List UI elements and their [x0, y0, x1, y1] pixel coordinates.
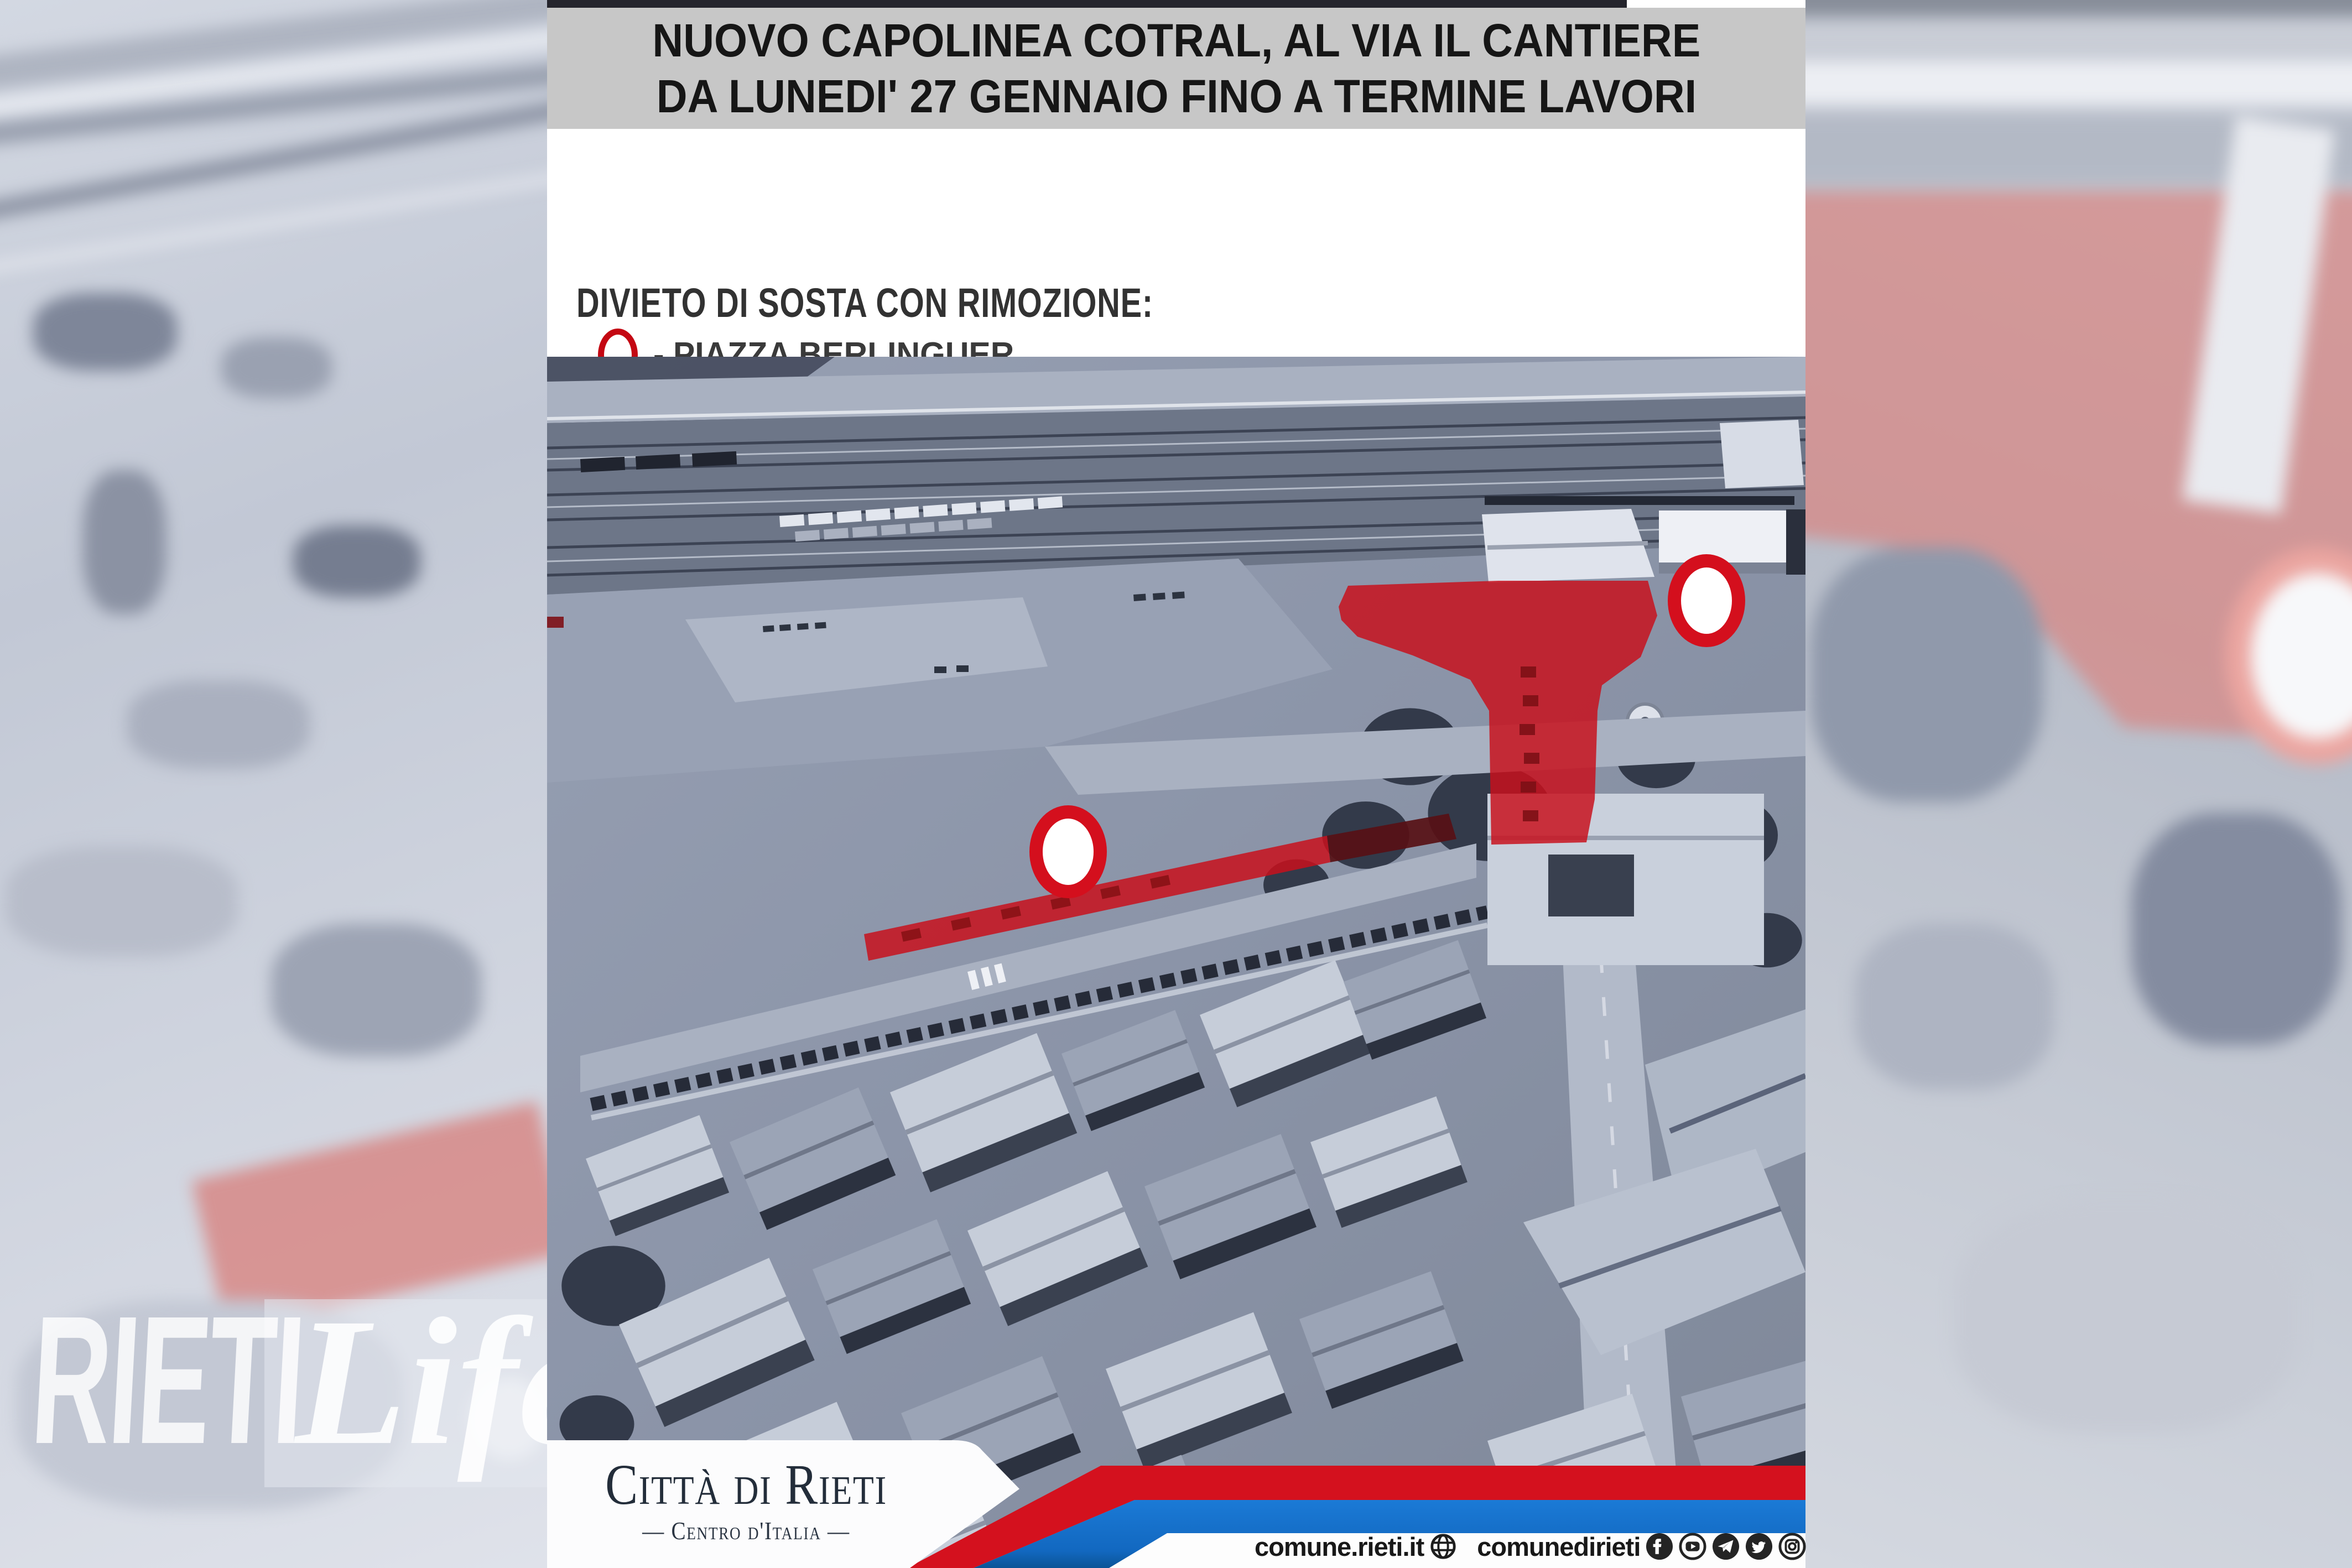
city-logo-subtitle: — Centro d'Italia —: [582, 1517, 911, 1545]
poster-top-dark-strip: [547, 0, 1627, 8]
rietilife-watermark: RIETILife: [28, 1289, 621, 1487]
social-handle: comunedirieti: [1477, 1531, 1640, 1562]
telegram-icon: [1712, 1533, 1740, 1560]
screenshot-canvas: RIETILife NUOVO CAPOLINEA COTRAL, AL VIA…: [0, 0, 2352, 1568]
website-url: comune.rieti.it: [1255, 1531, 1424, 1562]
city-logo-title: Città di Rieti: [582, 1455, 911, 1515]
background-aerial-right: [1805, 0, 2352, 1568]
aerial-map-graphic: [547, 357, 1805, 1568]
alert-title-band: NUOVO CAPOLINEA COTRAL, AL VIA IL CANTIE…: [547, 8, 1805, 129]
notice-heading: DIVIETO DI SOSTA CON RIMOZIONE:: [576, 279, 1153, 326]
map-marker-piazza-berlinguer: [1674, 561, 1739, 640]
watermark-rieti-text: RIETI: [28, 1289, 307, 1471]
map-marker-via-canali: [1036, 812, 1100, 892]
facebook-icon: [1646, 1533, 1673, 1560]
twitter-icon: [1745, 1533, 1773, 1560]
youtube-icon: [1679, 1533, 1706, 1560]
footer-contact-row: comune.rieti.it comunedirieti: [1255, 1529, 1806, 1564]
no-parking-notice-section: DIVIETO DI SOSTA CON RIMOZIONE: - PIAZZA…: [547, 129, 1805, 357]
aerial-map: [547, 357, 1805, 1568]
municipal-notice-poster: NUOVO CAPOLINEA COTRAL, AL VIA IL CANTIE…: [547, 0, 1805, 1568]
instagram-icon: [1778, 1533, 1806, 1560]
alert-title-line2: DA LUNEDI' 27 GENNAIO FINO A TERMINE LAV…: [656, 69, 1696, 124]
background-right-blur-layer: [1805, 0, 2352, 1568]
globe-icon: [1429, 1533, 1457, 1560]
alert-title-line1: NUOVO CAPOLINEA COTRAL, AL VIA IL CANTIE…: [652, 13, 1700, 69]
